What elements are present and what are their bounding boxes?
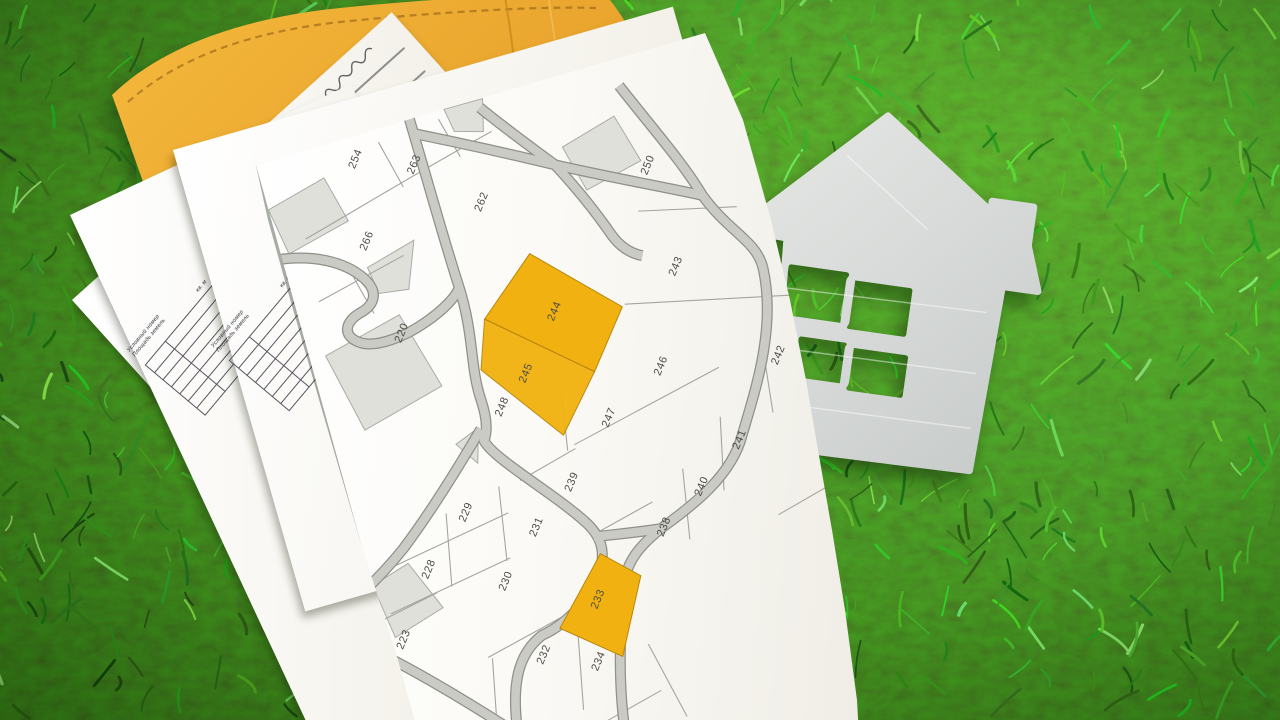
parcel-label: 250 <box>639 153 658 176</box>
parcel-label: 266 <box>358 229 377 252</box>
parcel-label: 243 <box>667 255 686 278</box>
parcel-label: 229 <box>457 501 476 524</box>
parcel-label: 248 <box>493 395 512 418</box>
parcel-label: 242 <box>769 343 788 366</box>
parcel-label: 234 <box>589 650 608 673</box>
parcel-label: 239 <box>562 470 581 493</box>
parcel-label: 231 <box>527 515 546 538</box>
photo-scene: Условный номер Площадь земель кв. м Усло… <box>0 0 1280 720</box>
parcel-label: 262 <box>472 190 491 213</box>
parcel-label: 230 <box>497 569 516 592</box>
parcel-label: 254 <box>346 147 365 170</box>
parcel-label: 247 <box>600 406 619 429</box>
parcel-label: 228 <box>420 558 439 581</box>
parcel-label: 246 <box>652 354 671 377</box>
